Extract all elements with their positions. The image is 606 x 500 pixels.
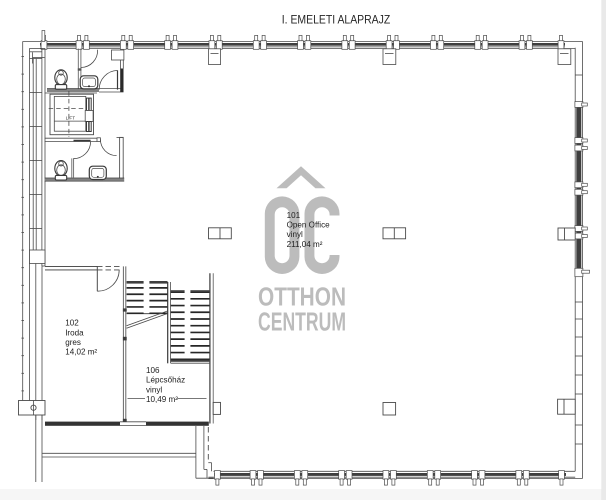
svg-text:I. EMELETI ALAPRAJZ: I. EMELETI ALAPRAJZ [282, 13, 391, 27]
svg-text:Iroda: Iroda [65, 328, 84, 337]
svg-text:101: 101 [287, 211, 301, 220]
svg-text:14,02 m²: 14,02 m² [65, 348, 97, 357]
svg-text:LIFT: LIFT [66, 116, 76, 121]
svg-text:CENTRUM: CENTRUM [258, 309, 346, 337]
svg-text:vinyl: vinyl [146, 385, 162, 394]
svg-text:Open Office: Open Office [287, 221, 331, 230]
svg-text:vinyl: vinyl [287, 230, 303, 239]
svg-text:gres: gres [65, 338, 81, 347]
svg-text:102: 102 [65, 319, 79, 328]
svg-text:OTTHON: OTTHON [258, 284, 346, 312]
svg-text:106: 106 [146, 366, 160, 375]
svg-text:Lépcsőház: Lépcsőház [146, 376, 185, 385]
svg-text:10,49 m²: 10,49 m² [146, 395, 178, 404]
svg-text:211,04 m²: 211,04 m² [287, 240, 323, 249]
